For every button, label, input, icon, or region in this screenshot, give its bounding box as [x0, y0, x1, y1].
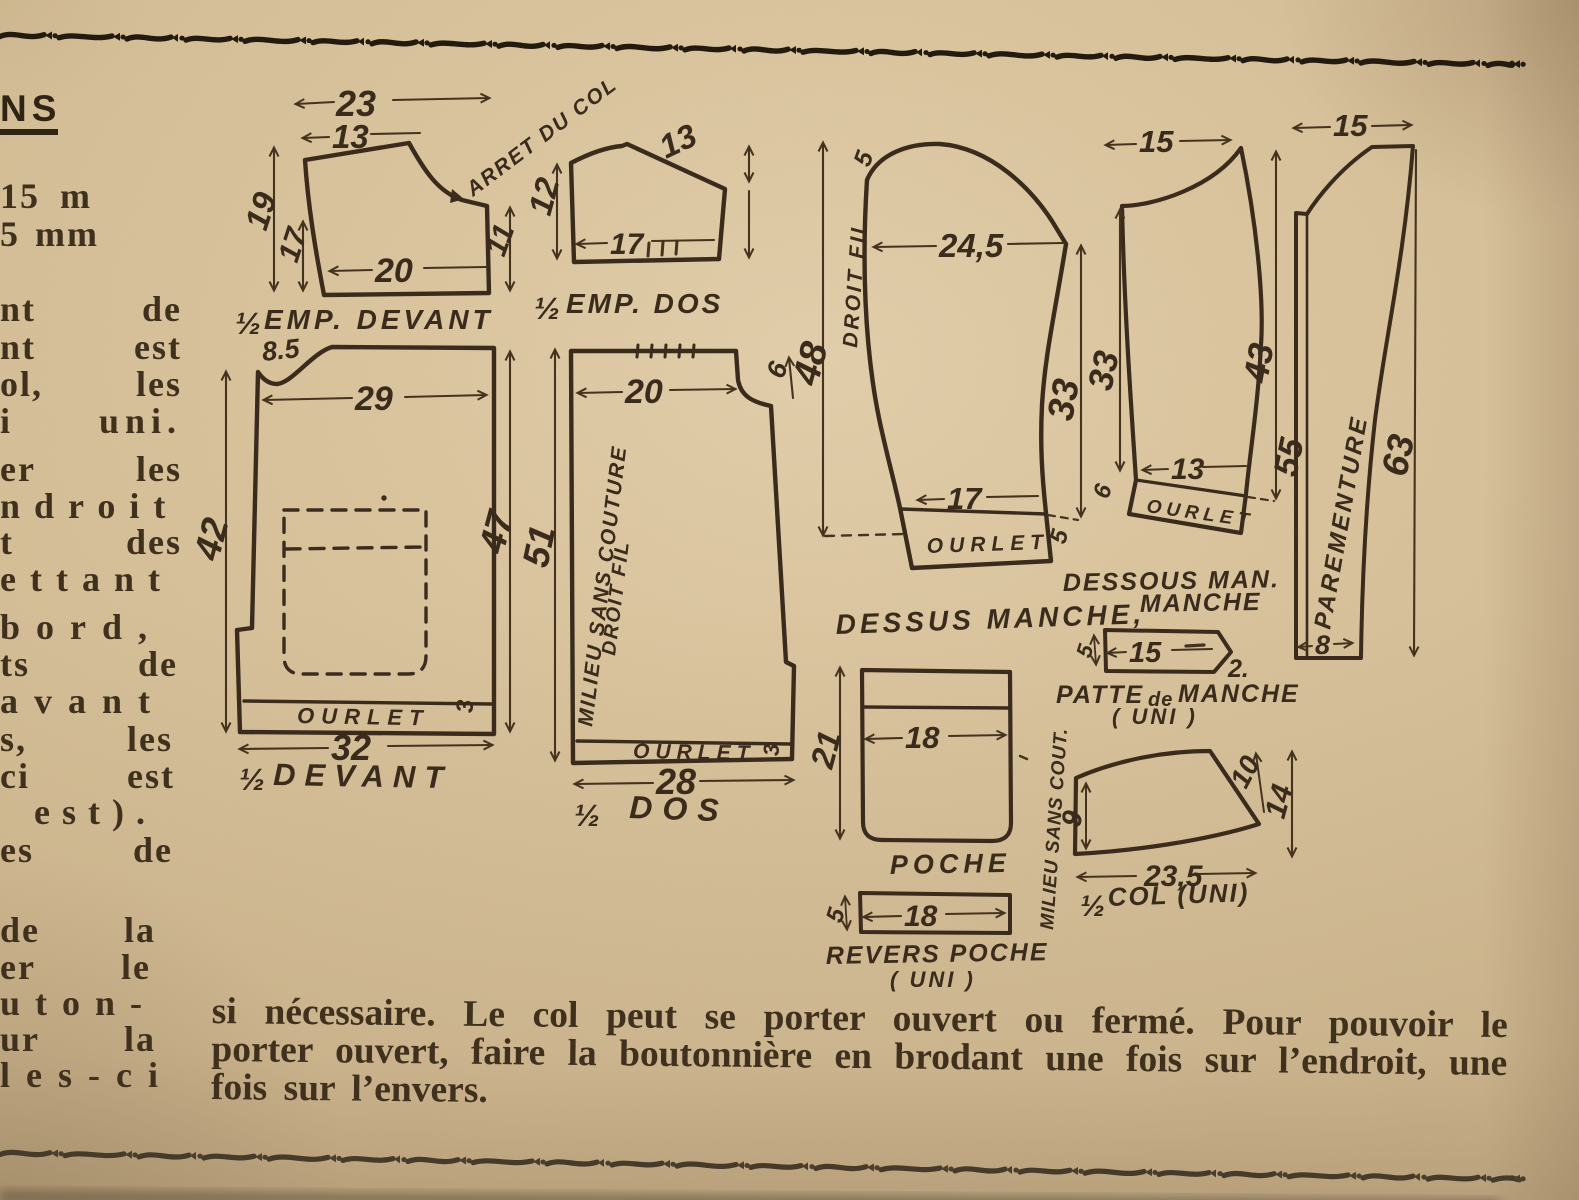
svg-text:15: 15 — [1129, 637, 1162, 669]
svg-text:17: 17 — [610, 228, 645, 261]
svg-text:EMP. DEVANT: EMP. DEVANT — [264, 304, 494, 335]
svg-text:13: 13 — [1171, 453, 1205, 486]
svg-text:½: ½ — [1080, 890, 1105, 923]
svg-text:POCHE: POCHE — [890, 848, 1012, 880]
svg-text:½: ½ — [239, 762, 265, 797]
svg-text:OURLET: OURLET — [926, 531, 1049, 558]
svg-text:3: 3 — [452, 699, 479, 713]
svg-text:OURLET: OURLET — [297, 703, 430, 730]
svg-text:43: 43 — [1236, 340, 1281, 387]
svg-text:MANCHE: MANCHE — [1140, 588, 1262, 618]
svg-text:13: 13 — [332, 118, 369, 155]
svg-text:EMP. DOS: EMP. DOS — [566, 288, 723, 319]
svg-text:18: 18 — [905, 720, 940, 755]
svg-text:33: 33 — [1040, 375, 1088, 423]
svg-text:½: ½ — [534, 291, 560, 326]
svg-text:½: ½ — [235, 306, 261, 341]
svg-text:20: 20 — [374, 252, 413, 290]
svg-text:18: 18 — [904, 900, 938, 933]
svg-text:OURLET: OURLET — [633, 740, 756, 765]
svg-text:15: 15 — [1139, 124, 1174, 159]
svg-text:20: 20 — [624, 373, 663, 411]
svg-text:51: 51 — [515, 522, 564, 571]
svg-text:½: ½ — [574, 798, 600, 833]
svg-text:17: 17 — [947, 481, 983, 516]
svg-text:3: 3 — [759, 744, 784, 756]
svg-text:15: 15 — [1333, 108, 1368, 143]
svg-text:2.: 2. — [1227, 655, 1249, 683]
svg-text:24,5: 24,5 — [938, 227, 1004, 264]
svg-text:8: 8 — [1315, 630, 1330, 660]
svg-text:REVERS POCHE: REVERS POCHE — [826, 938, 1049, 970]
svg-text:( UNI ): ( UNI ) — [890, 967, 976, 992]
svg-text:( UNI ): ( UNI ) — [1112, 704, 1198, 729]
svg-text:29: 29 — [354, 380, 393, 418]
svg-text:COL (UNI): COL (UNI) — [1107, 877, 1250, 912]
svg-text:DEVANT: DEVANT — [273, 757, 453, 795]
svg-text:8.5: 8.5 — [260, 333, 301, 367]
svg-text:DOS: DOS — [629, 789, 730, 828]
